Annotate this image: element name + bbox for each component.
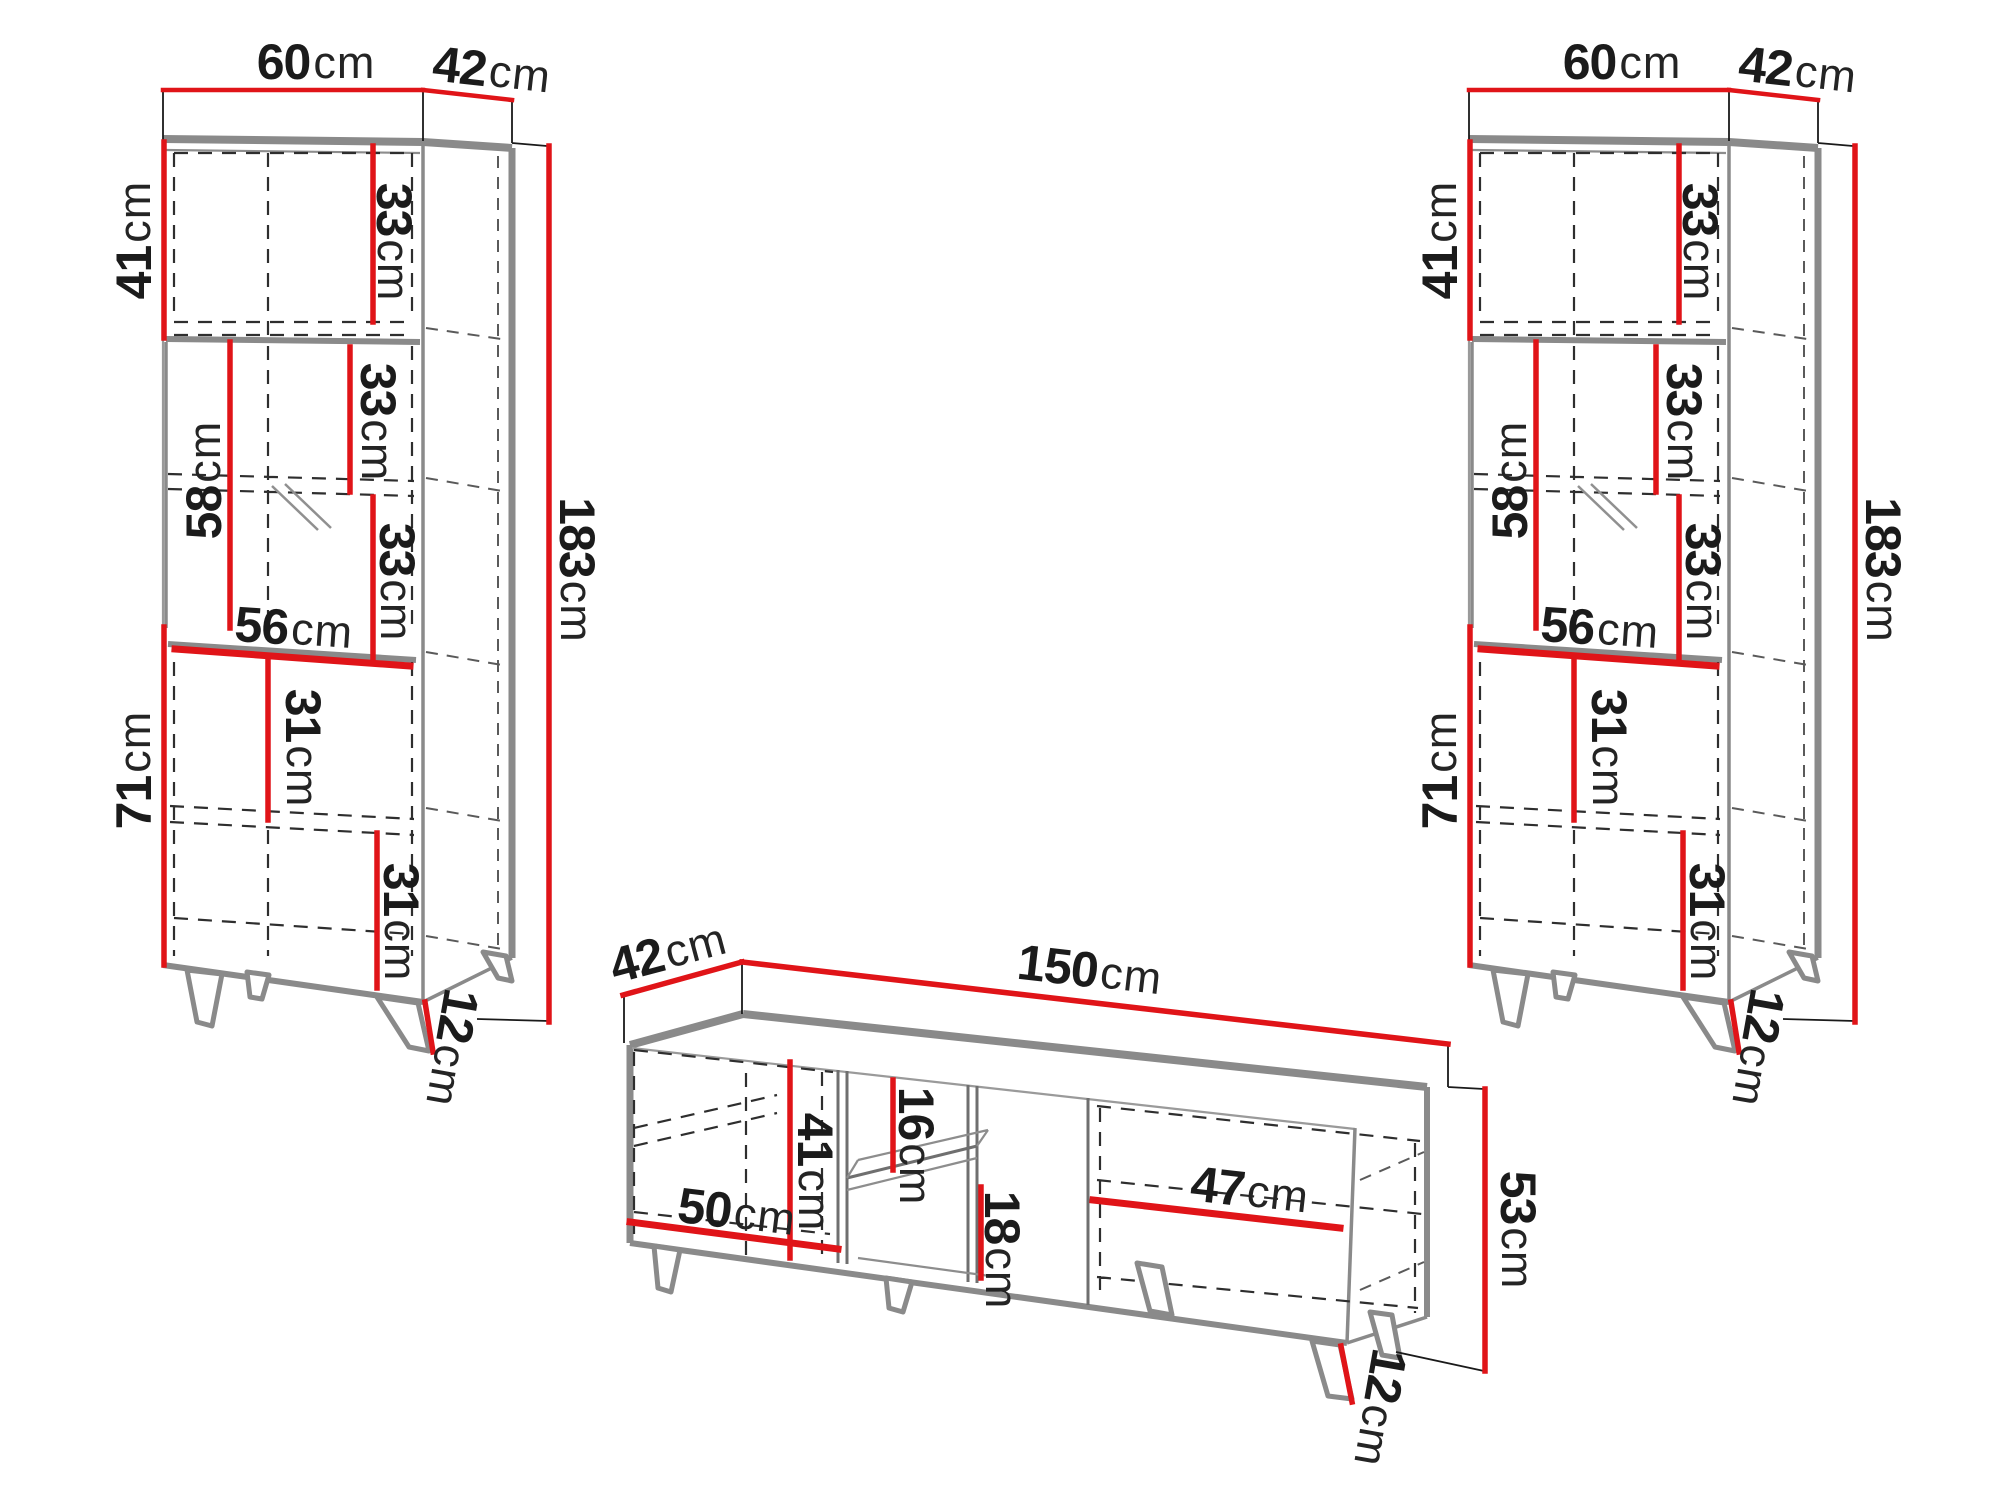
leg-front-left <box>1493 970 1528 1026</box>
dim-label-lower-shelf-upper: 31cm <box>275 689 331 808</box>
furniture-dimensions-diagram: 60cm 42cm 41cm 33cm 58cm 33cm 33cm 56cm … <box>0 0 2000 1500</box>
dim-label-inner-width: 56cm <box>1539 596 1661 660</box>
dim-label-top-width: 60cm <box>1563 34 1682 90</box>
dim-label-upper-height: 41cm <box>1412 181 1468 300</box>
dim-label-lower-shelf-lower: 31cm <box>373 863 429 982</box>
tv-stand-drawing: 42cm 150cm 41cm 16cm 18cm 50cm 47cm 53cm… <box>603 910 1546 1472</box>
leg-front-right <box>377 997 429 1051</box>
dim-label-lower-shelf-lower: 31cm <box>1679 863 1735 982</box>
leg-back-left <box>1553 972 1575 999</box>
dim-label-niche-lower: 18cm <box>974 1191 1030 1310</box>
right-cabinet-drawing: 60cm 42cm 41cm 33cm 58cm 33cm 33cm 56cm … <box>1412 34 1911 1111</box>
dim-label-body-height: 53cm <box>1490 1171 1546 1290</box>
dim-label-upper-height: 41cm <box>106 181 162 300</box>
tv-leg-1 <box>654 1246 680 1292</box>
left-cabinet-drawing: 60cm 42cm 41cm 33cm 58cm 33cm 33cm 56cm … <box>106 34 605 1111</box>
cabinet-shelf-solid-top <box>166 339 420 342</box>
dim-label-total-height: 183cm <box>549 497 605 642</box>
dim-label-total-height: 183cm <box>1855 497 1911 642</box>
dim-label-middle-height: 58cm <box>176 421 232 540</box>
dim-label-lower-height: 71cm <box>1412 711 1468 830</box>
dim-label-upper-shelf: 33cm <box>1672 183 1728 302</box>
leg-front-left <box>187 970 222 1026</box>
leg-back-left <box>247 972 269 999</box>
leg-front-right <box>1683 997 1735 1051</box>
tv-leg-2 <box>886 1278 912 1312</box>
dim-label-middle-height: 58cm <box>1482 421 1538 540</box>
dim-label-upper-shelf: 33cm <box>366 183 422 302</box>
dim-label-inner-width: 56cm <box>233 596 355 660</box>
dim-label-middle-shelf-lower: 33cm <box>1675 523 1731 642</box>
dim-label-lower-shelf-upper: 31cm <box>1581 689 1637 808</box>
dim-label-middle-shelf-upper: 33cm <box>350 363 406 482</box>
cabinet-shelf-solid-top <box>1472 339 1726 342</box>
dim-label-middle-shelf-upper: 33cm <box>1656 363 1712 482</box>
dim-label-top-width: 60cm <box>257 34 376 90</box>
dim-label-leg-height: 12cm <box>1342 1345 1418 1472</box>
dim-label-middle-shelf-lower: 33cm <box>369 523 425 642</box>
dim-label-niche-upper: 16cm <box>888 1087 944 1206</box>
dim-label-lower-height: 71cm <box>106 711 162 830</box>
